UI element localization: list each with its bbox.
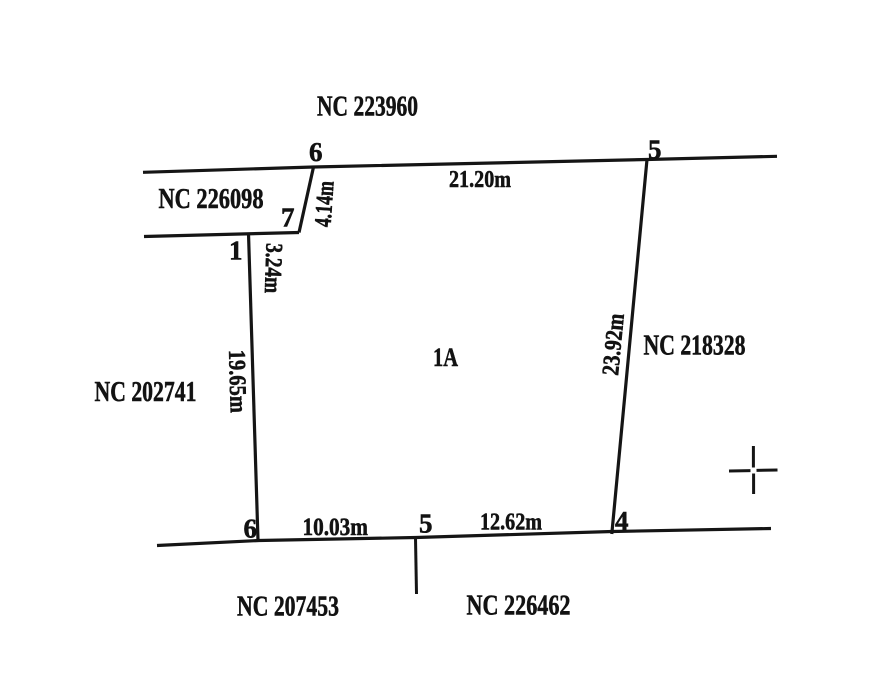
svg-text:5: 5 (419, 509, 433, 539)
svg-text:NC 226462: NC 226462 (467, 590, 571, 622)
svg-text:3.24m: 3.24m (259, 243, 287, 294)
svg-text:1A: 1A (433, 343, 458, 372)
svg-text:6: 6 (309, 137, 323, 167)
svg-text:NC 223960: NC 223960 (317, 91, 418, 123)
svg-text:4: 4 (615, 506, 629, 536)
svg-text:21.20m: 21.20m (449, 167, 511, 193)
svg-text:23.92m: 23.92m (598, 312, 630, 376)
svg-text:6: 6 (244, 514, 258, 544)
svg-text:19.65m: 19.65m (223, 349, 251, 413)
svg-text:7: 7 (281, 203, 295, 233)
svg-text:NC 202741: NC 202741 (95, 376, 197, 408)
svg-text:NC 218328: NC 218328 (644, 330, 746, 362)
svg-text:NC 207453: NC 207453 (237, 591, 339, 623)
svg-text:NC 226098: NC 226098 (159, 183, 264, 215)
svg-text:10.03m: 10.03m (303, 514, 369, 541)
svg-text:1: 1 (229, 236, 243, 266)
svg-text:4.14m: 4.14m (311, 180, 340, 228)
svg-text:12.62m: 12.62m (480, 510, 542, 536)
svg-text:5: 5 (648, 135, 662, 165)
